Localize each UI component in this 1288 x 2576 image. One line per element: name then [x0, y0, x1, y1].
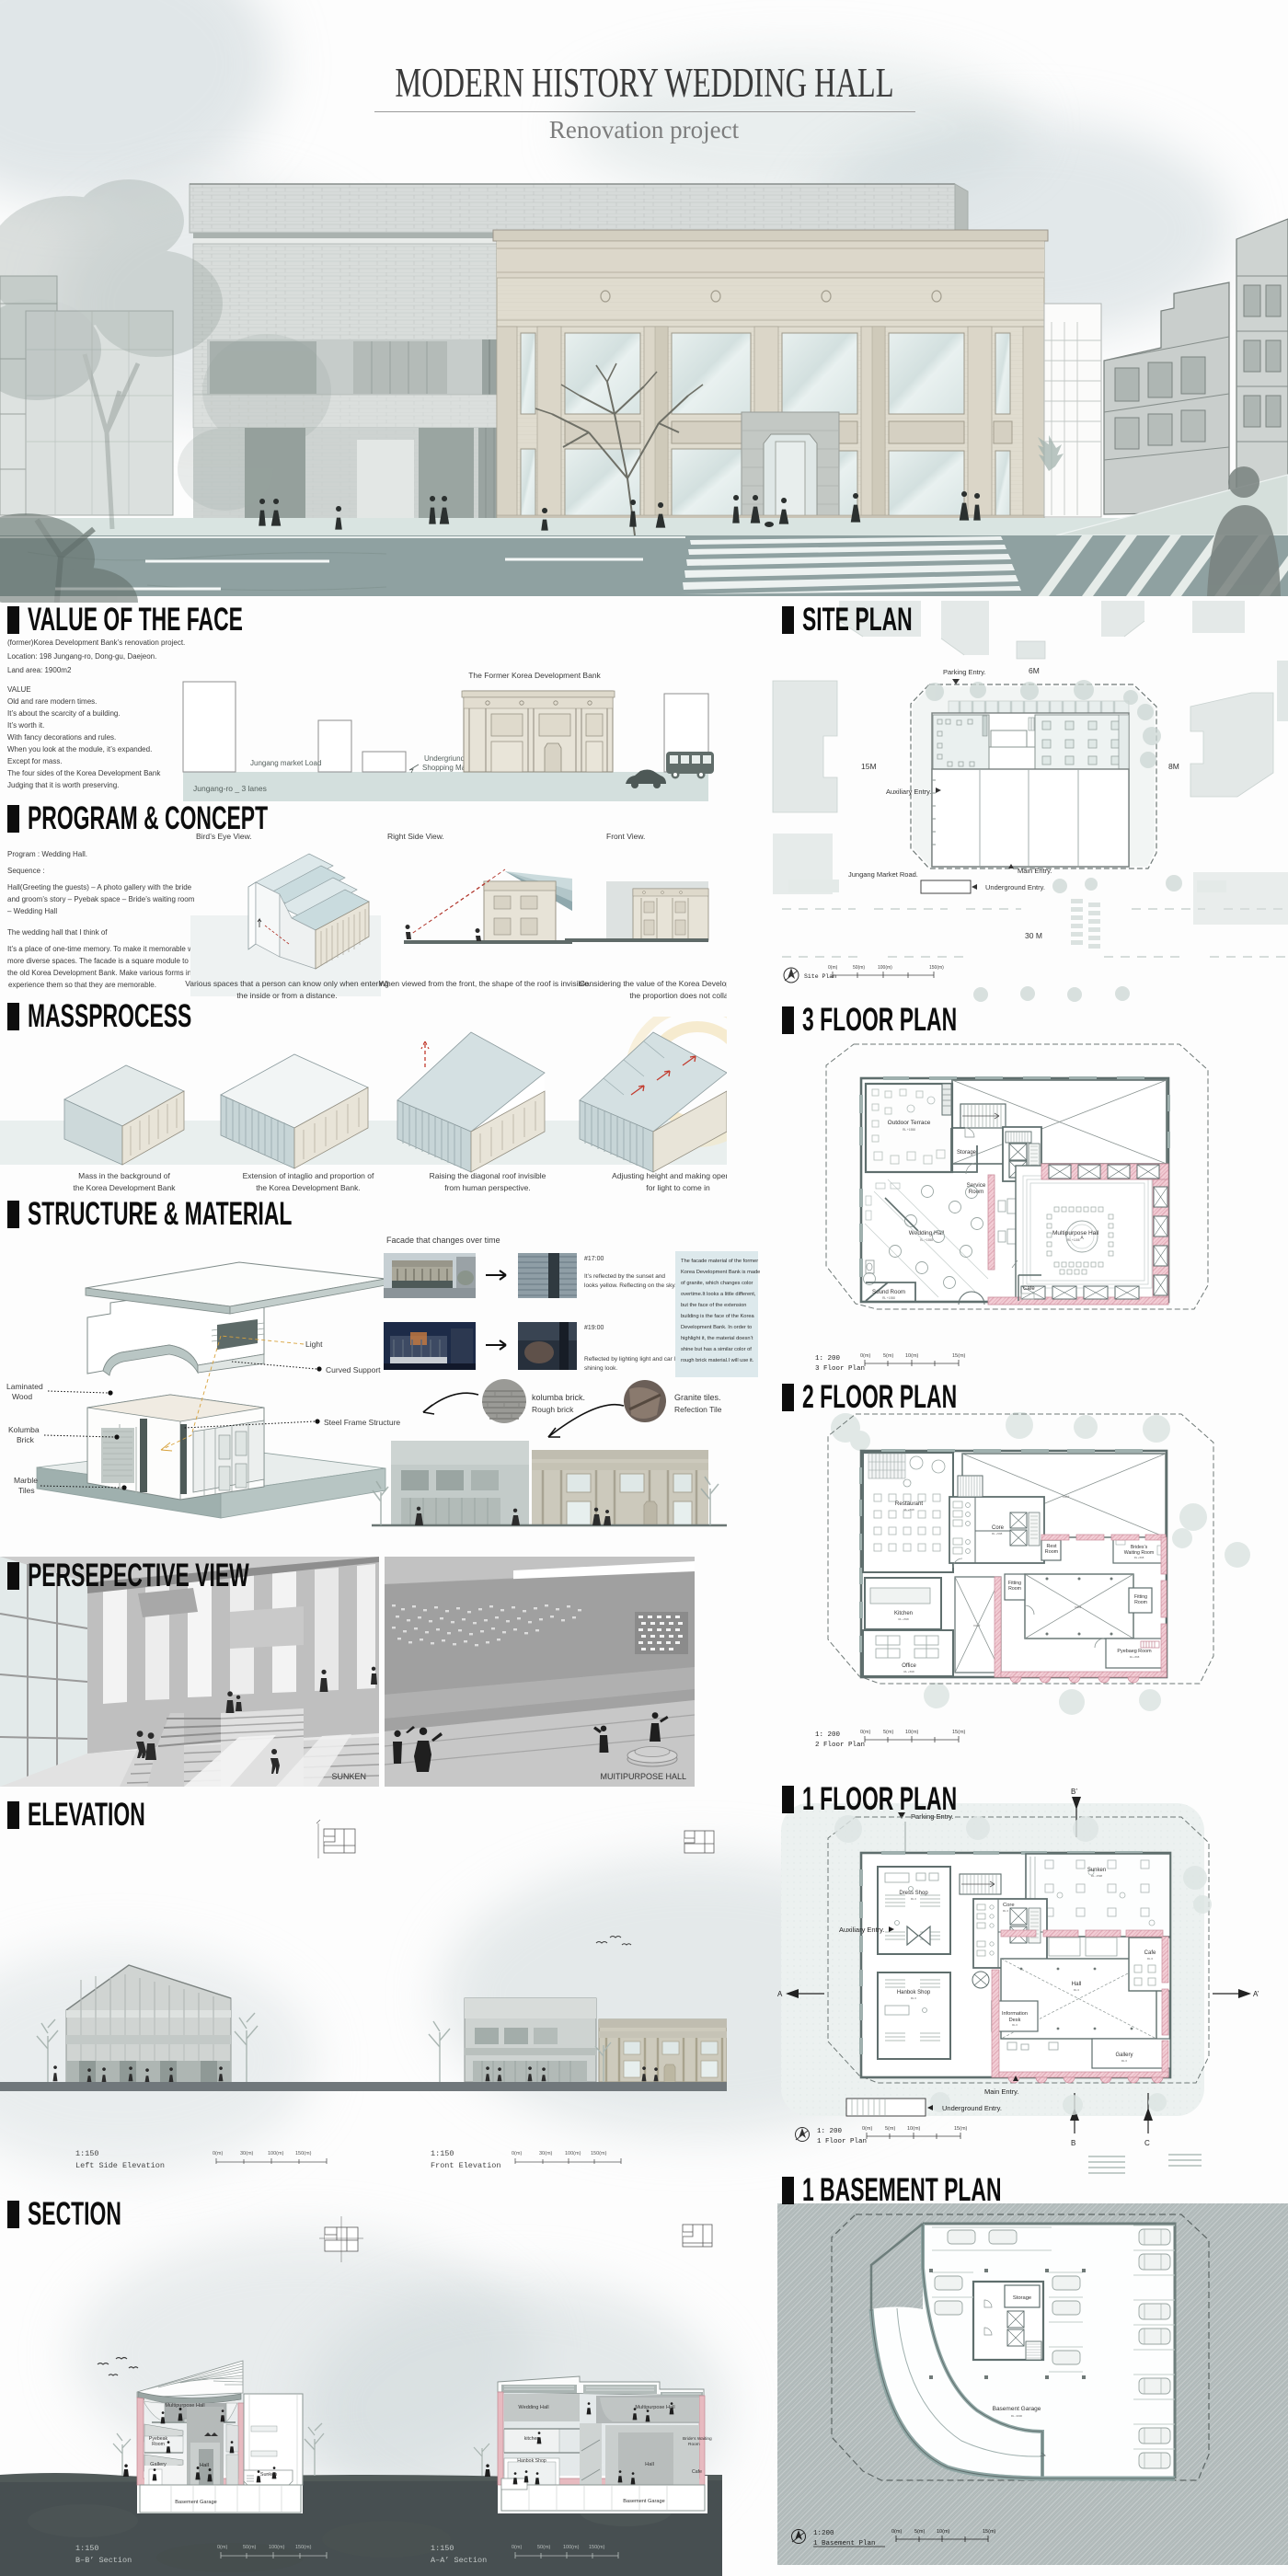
svg-text:the proportion does not collap: the proportion does not collapse. [629, 991, 727, 1000]
svg-text:When viewed from the front, th: When viewed from the front, the shape of… [379, 979, 591, 988]
svg-text:Right Side View.: Right Side View. [387, 833, 444, 841]
svg-text:Hall(Greeting the guests) – A: Hall(Greeting the guests) – A photo gall… [7, 883, 192, 891]
svg-text:Undergriund: Undergriund [424, 754, 465, 763]
svg-text:Multipurpose Hall: Multipurpose Hall [1052, 1230, 1099, 1236]
svg-text:Front View.: Front View. [606, 833, 645, 841]
svg-text:Wedding Hall: Wedding Hall [518, 2405, 548, 2410]
svg-text:2 Floor Plan: 2 Floor Plan [815, 1742, 865, 1749]
svg-text:Storage: Storage [957, 1150, 977, 1156]
svg-text:(former)Korea Development Bank: (former)Korea Development Bank’s renovat… [7, 638, 185, 647]
svg-text:Room: Room [688, 2442, 700, 2447]
svg-text:shining look.: shining look. [584, 1365, 617, 1372]
svg-text:A–A’ Section: A–A’ Section [431, 2556, 487, 2565]
svg-text:of granite, which changes col: of granite, which changes color [681, 1281, 753, 1286]
svg-text:Outdoor Terrace: Outdoor Terrace [888, 1120, 931, 1126]
svg-text:void: void [973, 1623, 980, 1627]
svg-text:Brick: Brick [17, 1435, 35, 1444]
svg-text:Shopping Mall: Shopping Mall [422, 764, 469, 772]
svg-text:1:150: 1:150 [75, 2544, 99, 2553]
svg-text:Underground Entry.: Underground Entry. [985, 883, 1045, 891]
svg-text:30(m): 30(m) [240, 2151, 254, 2156]
svg-text:Marble: Marble [14, 1476, 38, 1485]
svg-text:Location: 198 Jungang-ro, Dong: Location: 198 Jungang-ro, Dong-gu, Daeje… [7, 652, 156, 661]
svg-text:RL +1558: RL +1558 [882, 1296, 895, 1300]
svg-text:Jungang Market Road.: Jungang Market Road. [848, 870, 918, 879]
svg-text:the old Korea Development Bank: the old Korea Development Bank. Make var… [7, 969, 219, 977]
svg-text:1: 200: 1: 200 [815, 1355, 841, 1363]
svg-text:Tiles: Tiles [18, 1486, 35, 1495]
svg-text:RL 0: RL 0 [1003, 1909, 1009, 1913]
svg-text:Room: Room [1008, 1586, 1021, 1592]
svg-text:15(m): 15(m) [952, 1730, 966, 1735]
svg-text:0(m): 0(m) [512, 2545, 522, 2550]
svg-text:RL +598: RL +598 [1134, 1556, 1144, 1559]
svg-text:150(m): 150(m) [589, 2545, 605, 2550]
svg-text:1: 200: 1: 200 [817, 2128, 843, 2135]
svg-text:5(m): 5(m) [883, 1353, 893, 1359]
svg-text:The four sides of the Korea De: The four sides of the Korea Development … [7, 769, 161, 777]
svg-text:Basement Garage: Basement Garage [175, 2500, 216, 2505]
svg-text:the Korea Development Bank.: the Korea Development Bank. [256, 1183, 360, 1192]
svg-text:the Korea Development Bank: the Korea Development Bank [73, 1183, 176, 1192]
svg-text:RL 0: RL 0 [1012, 2023, 1018, 2027]
svg-text:RL +1558: RL +1558 [903, 1128, 915, 1132]
svg-text:Judging that it is worth prese: Judging that it is worth preserving. [7, 781, 119, 789]
svg-text:looks yellow. Reflecting on th: looks yellow. Reflecting on the sky. [584, 1282, 676, 1289]
svg-text:When you look at the module, i: When you look at the module, it’s expand… [7, 745, 152, 753]
svg-text:It’s reflected by the sunset a: It’s reflected by the sunset and [584, 1273, 665, 1280]
svg-text:A: A [777, 1990, 783, 1998]
svg-text:B–B’ Section: B–B’ Section [75, 2556, 132, 2565]
svg-text:10(m): 10(m) [905, 1730, 919, 1735]
svg-text:0(m): 0(m) [862, 2126, 872, 2132]
svg-text:Jungang market Load: Jungang market Load [250, 759, 321, 767]
svg-text:Reflected by lighting light an: Reflected by lighting light and car ligh… [584, 1356, 685, 1363]
svg-text:15(m): 15(m) [952, 1353, 966, 1359]
svg-text:1:150: 1:150 [75, 2149, 99, 2158]
svg-text:50(m): 50(m) [243, 2545, 257, 2550]
svg-text:void: void [1063, 1494, 1069, 1499]
svg-text:RL +598: RL +598 [903, 1670, 914, 1673]
svg-text:Light: Light [305, 1340, 323, 1349]
svg-text:A’: A’ [1253, 1990, 1259, 1998]
svg-text:Hall: Hall [200, 2463, 209, 2468]
svg-text:kolumba brick.: kolumba brick. [532, 1393, 585, 1402]
svg-text:#19:00: #19:00 [584, 1325, 604, 1331]
svg-text:Program : Wedding Hall.: Program : Wedding Hall. [7, 850, 87, 858]
svg-text:building is the face of the Ko: building is the face of the Korea [681, 1314, 755, 1319]
svg-text:RL 0: RL 0 [1121, 2059, 1128, 2063]
svg-text:Multipurpose Hall: Multipurpose Hall [635, 2405, 674, 2410]
svg-text:3 Floor Plan: 3 Floor Plan [815, 1365, 865, 1373]
svg-text:100(m): 100(m) [269, 2545, 285, 2550]
svg-text:Old and rare modern times.: Old and rare modern times. [7, 697, 97, 706]
svg-text:10(m): 10(m) [907, 2126, 921, 2132]
svg-text:10(m): 10(m) [937, 2529, 950, 2535]
svg-text:15(m): 15(m) [983, 2529, 996, 2535]
svg-text:RL +598: RL +598 [992, 1532, 1003, 1535]
svg-text:for light to come in: for light to come in [646, 1183, 710, 1192]
svg-text:shine but has a similar color: shine but has a similar color of [681, 1347, 752, 1352]
svg-text:30 M: 30 M [1025, 931, 1042, 940]
svg-text:5(m): 5(m) [885, 2126, 895, 2132]
svg-text:It’s worth it.: It’s worth it. [7, 721, 44, 730]
svg-text:Front Elevation: Front Elevation [431, 2161, 501, 2170]
svg-text:RL 0: RL 0 [911, 1996, 917, 2000]
svg-text:Kolumba: Kolumba [8, 1425, 40, 1434]
svg-text:Room: Room [152, 2442, 165, 2447]
svg-text:Main Entry.: Main Entry. [984, 2087, 1018, 2096]
svg-text:150(m): 150(m) [295, 2151, 312, 2156]
svg-text:5(m): 5(m) [914, 2529, 925, 2535]
svg-text:100(m): 100(m) [565, 2151, 581, 2156]
svg-text:experience them so that they a: experience them so that they are memorab… [8, 981, 156, 989]
svg-text:C: C [1144, 2139, 1150, 2147]
svg-text:1:200: 1:200 [813, 2530, 834, 2537]
svg-text:1:150: 1:150 [431, 2149, 454, 2158]
svg-text:Information: Information [1002, 2011, 1028, 2017]
svg-text:Parking Entry.: Parking Entry. [943, 668, 986, 676]
svg-text:kitchen: kitchen [524, 2436, 540, 2442]
svg-text:Room: Room [969, 1189, 984, 1195]
svg-text:Laminated: Laminated [6, 1382, 43, 1391]
svg-text:0(m): 0(m) [512, 2151, 522, 2156]
svg-text:15(m): 15(m) [954, 2126, 968, 2132]
svg-text:Main Entry.: Main Entry. [1018, 867, 1052, 875]
svg-text:Cafe: Cafe [1023, 1286, 1035, 1292]
svg-text:0(m): 0(m) [828, 965, 838, 971]
svg-text:Rough brick: Rough brick [532, 1405, 574, 1414]
svg-text:Granite tiles.: Granite tiles. [674, 1393, 721, 1402]
svg-text:but the face of the extension: but the face of the extension [681, 1303, 746, 1308]
svg-text:Korea Development Bank is made: Korea Development Bank is made [681, 1270, 760, 1275]
svg-text:Raising the diagonal roof invi: Raising the diagonal roof invisible [430, 1171, 546, 1180]
svg-text:Hanbok Shop: Hanbok Shop [517, 2458, 546, 2464]
svg-text:Steel Frame Structure: Steel Frame Structure [324, 1418, 400, 1427]
svg-text:Dress Shop: Dress Shop [899, 1891, 928, 1896]
svg-text:Various spaces that a person c: Various spaces that a person can know on… [185, 979, 389, 988]
svg-text:from human perspective.: from human perspective. [444, 1183, 531, 1192]
svg-text:– Wedding Hall: – Wedding Hall [7, 907, 57, 915]
svg-text:The Former Korea Development B: The Former Korea Development Bank [468, 671, 601, 680]
svg-text:Jungang-ro _ 3 lanes: Jungang-ro _ 3 lanes [193, 784, 267, 793]
svg-text:Storage: Storage [1013, 2295, 1031, 2301]
svg-text:RL -1598: RL -1598 [1091, 1874, 1103, 1878]
svg-text:Office: Office [902, 1663, 916, 1669]
svg-text:100(m): 100(m) [563, 2545, 580, 2550]
svg-text:The facade material of the for: The facade material of the former [681, 1259, 758, 1264]
svg-text:highlight it, the material doe: highlight it, the material doesn’t [681, 1336, 753, 1341]
svg-text:15M: 15M [861, 762, 877, 771]
svg-text:B’: B’ [1071, 1788, 1077, 1796]
svg-text:RL 0: RL 0 [911, 1897, 917, 1901]
svg-text:and groom’s story – Pyebak spa: and groom’s story – Pyebak space – Bride… [7, 895, 195, 903]
svg-text:0(m): 0(m) [213, 2151, 223, 2156]
svg-text:8M: 8M [1168, 762, 1179, 771]
svg-text:Considering the value of the K: Considering the value of the Korea Devel… [580, 979, 727, 988]
svg-text:Gallery: Gallery [1115, 2053, 1133, 2058]
svg-text:Room: Room [1134, 1600, 1147, 1605]
svg-text:Hanbok Shop: Hanbok Shop [897, 1990, 931, 1995]
svg-text:0(m): 0(m) [217, 2545, 227, 2550]
svg-text:Pyebaeg Room: Pyebaeg Room [1117, 1649, 1152, 1654]
svg-text:B: B [1071, 2139, 1075, 2147]
svg-text:Cafe: Cafe [1144, 1950, 1156, 1956]
svg-text:RL 0: RL 0 [1074, 1988, 1080, 1992]
svg-text:Refection Tile: Refection Tile [674, 1405, 722, 1414]
svg-text:With fancy decorations and rul: With fancy decorations and rules. [7, 733, 116, 742]
svg-text:150(m): 150(m) [929, 965, 944, 971]
svg-text:Hall: Hall [1072, 1981, 1082, 1987]
svg-text:Development Bank. In order to: Development Bank. In order to [681, 1325, 752, 1330]
svg-text:RL +598: RL +598 [903, 1508, 914, 1512]
svg-text:6M: 6M [1029, 666, 1040, 675]
svg-text:RL +1158: RL +1158 [1067, 1238, 1080, 1242]
svg-text:Sound Room: Sound Room [872, 1289, 905, 1295]
svg-text:0(m): 0(m) [860, 1353, 870, 1359]
svg-text:Adjusting height and making op: Adjusting height and making openings [612, 1171, 727, 1180]
svg-text:overtime.It looks a little dif: overtime.It looks a little different, [681, 1292, 756, 1297]
svg-text:10(m): 10(m) [905, 1353, 919, 1359]
svg-text:Gallery: Gallery [150, 2462, 167, 2467]
svg-text:Restaurant: Restaurant [895, 1501, 924, 1507]
svg-text:MUITIPURPOSE HALL: MUITIPURPOSE HALL [600, 1772, 686, 1781]
svg-text:RL +598: RL +598 [898, 1617, 909, 1621]
svg-text:the inside or from a distance.: the inside or from a distance. [236, 991, 337, 1000]
svg-text:150(m): 150(m) [591, 2151, 607, 2156]
svg-text:The wedding hall that I think: The wedding hall that I think of [7, 928, 108, 937]
svg-text:150(m): 150(m) [295, 2545, 312, 2550]
svg-text:Cafe: Cafe [692, 2469, 702, 2475]
svg-text:0(m): 0(m) [891, 2529, 902, 2535]
svg-text:100(m): 100(m) [878, 965, 892, 971]
svg-text:more diverse spaces. The facad: more diverse spaces. The facade is a squ… [7, 957, 219, 965]
svg-text:RL -3000: RL -3000 [1011, 2414, 1023, 2418]
svg-text:Left Side Elevation: Left Side Elevation [75, 2161, 165, 2170]
svg-text:rough brick material.I will us: rough brick material.I will use it. [681, 1358, 754, 1363]
svg-text:Mass in the background of: Mass in the background of [78, 1171, 170, 1180]
svg-text:1:150: 1:150 [431, 2544, 454, 2553]
svg-text:Service: Service [967, 1182, 986, 1189]
svg-text:Site Plan: Site Plan [804, 973, 836, 980]
svg-text:Curved Support: Curved Support [326, 1365, 381, 1374]
svg-text:Facade that changes over time: Facade that changes over time [386, 1236, 500, 1245]
svg-text:It’s about the scarcity of a b: It’s about the scarcity of a building. [7, 709, 121, 718]
svg-text:Land area: 1900m2: Land area: 1900m2 [7, 666, 72, 674]
svg-text:#17:00: #17:00 [584, 1256, 604, 1262]
svg-text:Except for mass.: Except for mass. [7, 757, 63, 765]
svg-text:RL 0: RL 0 [1147, 1957, 1154, 1961]
svg-text:SUNKEN: SUNKEN [331, 1772, 366, 1781]
svg-text:Room: Room [1045, 1549, 1059, 1555]
svg-text:50(m): 50(m) [853, 965, 865, 971]
svg-text:RL +598: RL +598 [1130, 1655, 1140, 1659]
svg-text:Core: Core [992, 1525, 1005, 1531]
svg-text:Auxiliary Entry.: Auxiliary Entry. [839, 1926, 884, 1934]
svg-text:30(m): 30(m) [539, 2151, 553, 2156]
svg-text:void: void [1075, 1604, 1081, 1609]
svg-text:Sequence :: Sequence : [7, 867, 44, 875]
svg-text:Hall: Hall [645, 2462, 654, 2467]
svg-text:100(m): 100(m) [268, 2151, 284, 2156]
svg-text:5(m): 5(m) [883, 1730, 893, 1735]
svg-text:0(m): 0(m) [860, 1730, 870, 1735]
svg-text:Basement Garage: Basement Garage [623, 2499, 664, 2504]
svg-text:Core: Core [1003, 1903, 1015, 1908]
svg-text:Underground Entry.: Underground Entry. [942, 2104, 1002, 2112]
svg-text:It’s a place of one-time memor: It’s a place of one-time memory. To make… [7, 945, 201, 953]
svg-text:Kitchen: Kitchen [894, 1611, 913, 1616]
svg-text:1: 200: 1: 200 [815, 1731, 841, 1739]
svg-text:Sunken: Sunken [1087, 1868, 1106, 1873]
svg-text:VALUE: VALUE [7, 685, 31, 694]
svg-text:Wood: Wood [12, 1392, 32, 1401]
svg-text:Bride’s Waiting: Bride’s Waiting [683, 2436, 712, 2442]
svg-text:Auxiliary Entry.: Auxiliary Entry. [886, 788, 931, 796]
svg-text:1 Floor Plan: 1 Floor Plan [817, 2138, 867, 2145]
svg-text:50(m): 50(m) [537, 2545, 551, 2550]
svg-text:Extension of intaglio and prop: Extension of intaglio and proportion of [243, 1171, 374, 1180]
svg-text:Basement Garage: Basement Garage [993, 2406, 1041, 2412]
